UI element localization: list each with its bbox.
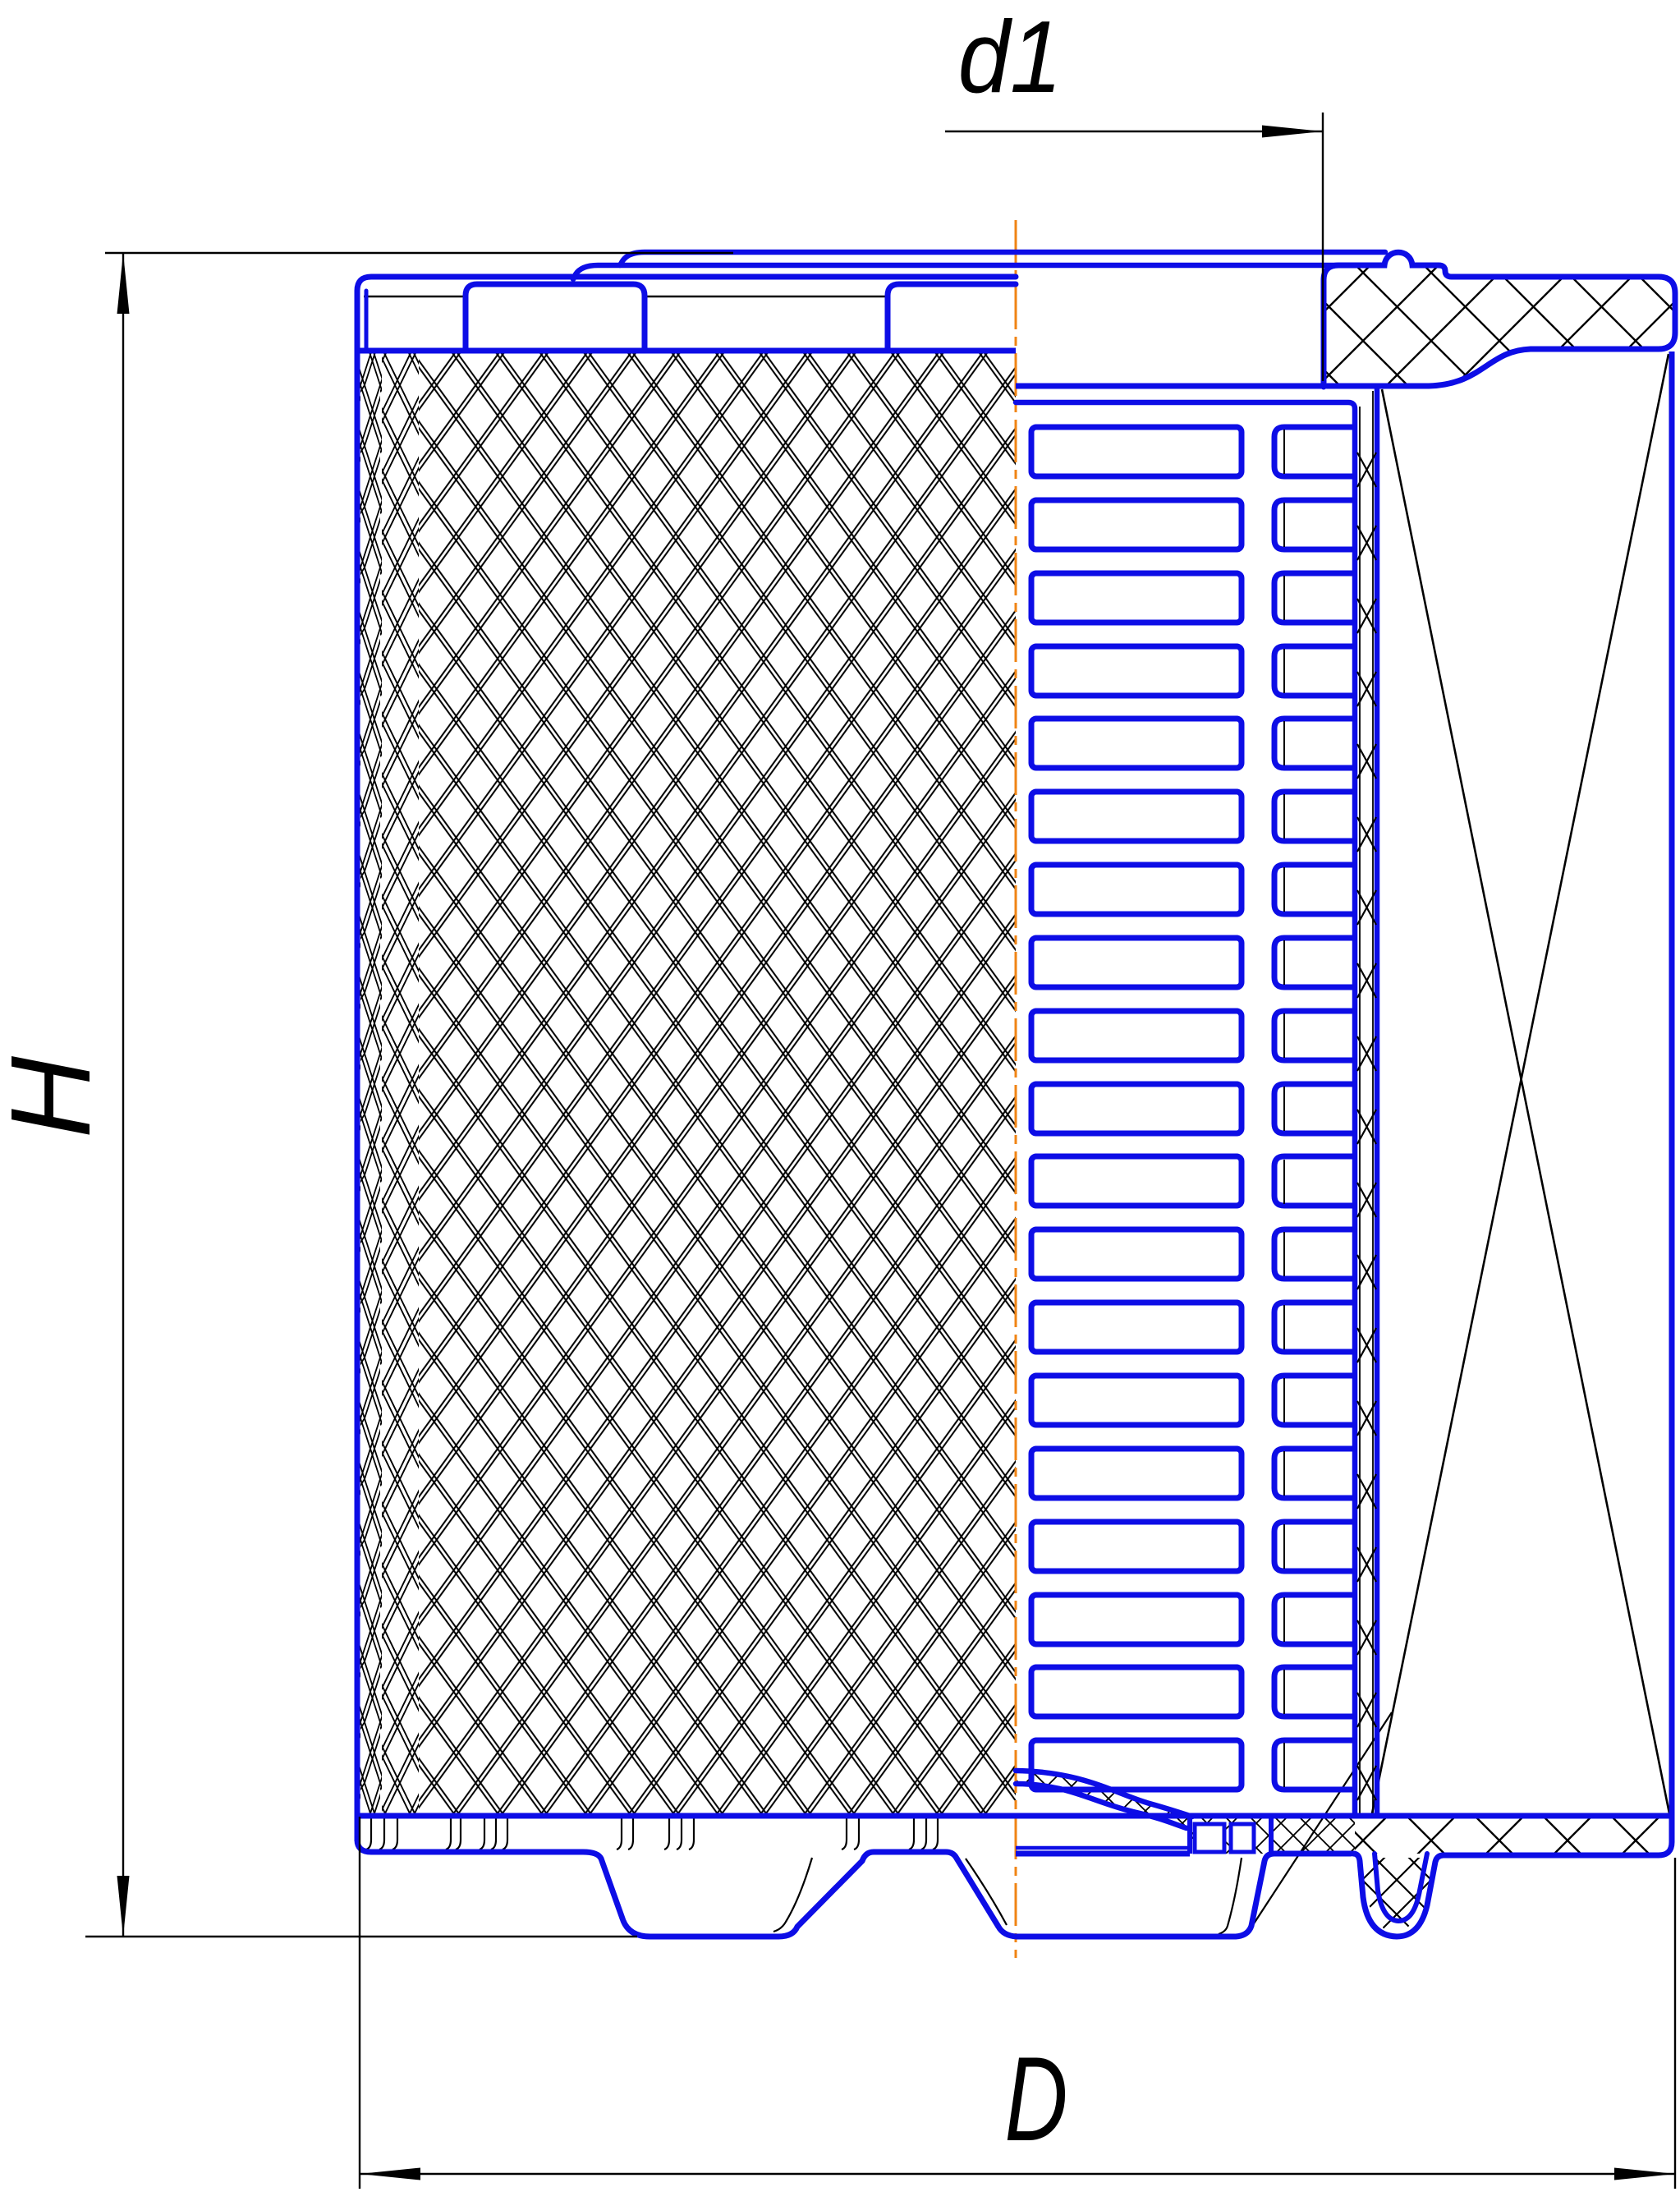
svg-text:d1: d1 (958, 1, 1063, 114)
svg-text:D: D (1005, 2033, 1068, 2167)
svg-text:H: H (0, 1056, 114, 1138)
